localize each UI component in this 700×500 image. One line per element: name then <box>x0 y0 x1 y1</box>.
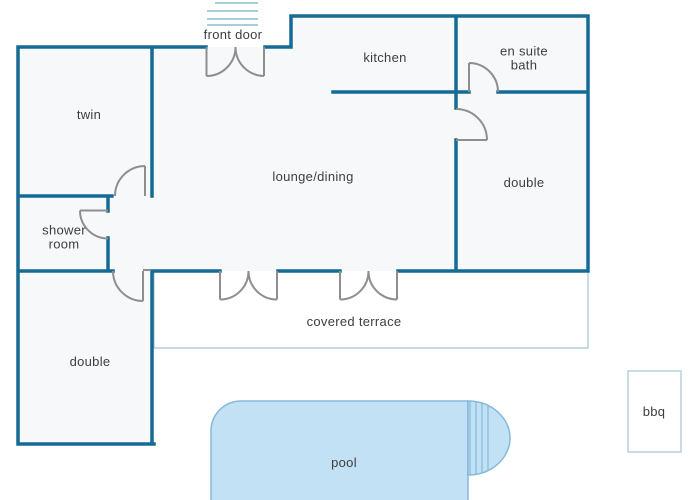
label-front-door: front door <box>204 28 263 42</box>
label-double-left: double <box>70 355 111 369</box>
terrace-french-door-2 <box>340 271 397 300</box>
floor-plan-drawing <box>0 0 700 500</box>
front-door-steps <box>207 3 258 25</box>
room-interiors <box>18 16 588 444</box>
floor-plan: front door twin shower room double loung… <box>0 0 700 500</box>
label-kitchen: kitchen <box>363 51 406 65</box>
label-double-right: double <box>504 176 545 190</box>
label-pool: pool <box>331 456 357 470</box>
label-covered-terrace: covered terrace <box>307 315 402 329</box>
label-lounge-dining: lounge/dining <box>272 170 353 184</box>
label-en-suite-bath: en suite bath <box>489 44 559 71</box>
label-twin: twin <box>77 108 101 122</box>
pool-basin <box>211 401 468 500</box>
label-shower-room: shower room <box>34 223 94 250</box>
pool-shape <box>211 401 510 500</box>
label-bbq: bbq <box>643 405 666 419</box>
terrace-french-door-1 <box>220 271 277 300</box>
pool-rounded-end <box>468 401 510 475</box>
